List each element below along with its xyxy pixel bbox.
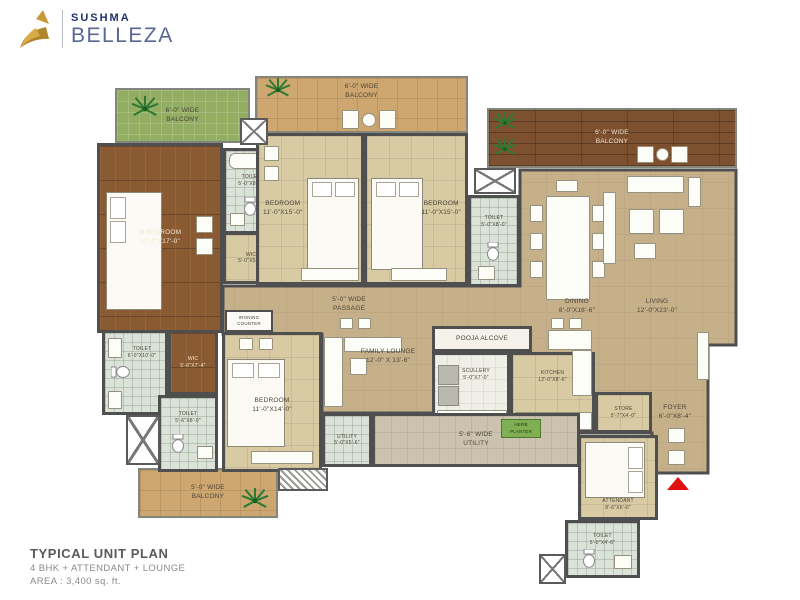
bed [585, 442, 645, 498]
shaft [126, 415, 160, 465]
shaft [539, 554, 566, 584]
room-label: IRONINGCOUNTER [237, 315, 261, 327]
lounge-sofa [324, 337, 343, 407]
bed [307, 178, 359, 270]
dining-chair [530, 205, 543, 222]
room-utility: UTILITY5'-0"X5'-6" [322, 413, 372, 467]
room-toilet-4: TOILET5'-6"X8'-0" [158, 395, 218, 472]
basin-icon [108, 338, 122, 358]
room-master-bedroom: M BEDROOM12'-0"X17'-0" [97, 143, 223, 333]
plan-area: AREA : 3,400 sq. ft. [30, 576, 185, 587]
room-label: 5'-6" WIDEUTILITY [459, 431, 493, 449]
room-bedroom-2: BEDROOM11'-0"X15'-0" [256, 133, 364, 285]
breakfast-counter [548, 330, 592, 350]
chair [264, 166, 279, 181]
plant-icon [492, 138, 518, 160]
dining-label: DINING8'-0"X16'-6" [549, 298, 605, 316]
bar-stool [551, 318, 564, 329]
room-label: 6'-0" WIDEBALCONY [345, 83, 379, 101]
bed [106, 192, 162, 310]
room-label: 6'-0" WIDEBALCONY [166, 107, 200, 125]
floor-plan-page: SUSHMA BELLEZA 6'-0" WIDEBALCONY 6'-0" W… [0, 0, 800, 600]
stool [340, 318, 353, 329]
tv-unit [603, 192, 616, 264]
family-lounge-label: FAMILY LOUNGE12'-0" X 13'-6" [342, 348, 434, 366]
room-label: TOILET5'-0"X8'-0" [481, 215, 506, 228]
basin-icon [197, 446, 213, 459]
wardrobe [301, 268, 359, 281]
room-attendant: ATTENDANT8'-6"X6'-0" [578, 435, 658, 520]
coffee-table [634, 243, 656, 259]
room-label: TOILET5'-6"X8'-0" [175, 411, 200, 424]
toilet-icon [171, 434, 185, 453]
bed [371, 178, 423, 270]
appliance [438, 386, 459, 406]
chair [264, 146, 279, 161]
dining-chair [530, 261, 543, 278]
chair [259, 338, 273, 350]
balcony-table [656, 148, 669, 161]
room-toilet-2: TOILET5'-0"X8'-0" [468, 195, 520, 287]
balcony-chair [379, 110, 396, 129]
room-label: POOJA ALCOVE [456, 335, 508, 344]
room-bedroom-3: BEDROOM11'-0"X15'-0" [364, 133, 468, 285]
toilet-icon [111, 365, 130, 379]
wardrobe [251, 451, 313, 464]
room-label: ATTENDANT8'-6"X6'-0" [602, 498, 633, 511]
room-store: STORE5'-7"X4'-0" [595, 392, 652, 433]
room-label: WIC5'-6"X7'-4" [180, 356, 205, 369]
room-utility-corridor: 5'-6" WIDEUTILITY HERBPLANTER [372, 413, 580, 467]
stool [358, 318, 371, 329]
room-toilet-5: TOILET5'-0"X4'-6" [565, 520, 640, 578]
living-label: LIVING12'-0"X23'-0" [629, 298, 685, 316]
dining-chair [530, 233, 543, 250]
room-label: TOILET5'-0"X4'-6" [590, 533, 615, 546]
room-label: BEDROOM11'-0"X15'-0" [421, 200, 461, 218]
room-label: BEDROOM11'-0"X15'-0" [263, 200, 303, 218]
balcony-chair [637, 146, 654, 163]
shaft [474, 168, 516, 194]
entry-arrow [667, 477, 689, 490]
plan-title: TYPICAL UNIT PLAN [30, 546, 185, 561]
sofa [627, 176, 684, 193]
balcony-chair [671, 146, 688, 163]
plant-icon [264, 78, 292, 102]
room-label: BEDROOM11'-0"X14'-0" [225, 397, 319, 415]
room-label: KITCHEN12'-0"X8'-6" [538, 370, 566, 383]
toilet-icon [582, 549, 596, 568]
shower-tray [108, 391, 122, 409]
plant-icon [240, 488, 270, 514]
dining-chair [556, 180, 578, 192]
toilet-icon [486, 242, 500, 261]
balcony-chair [342, 110, 359, 129]
room-label: M BEDROOM12'-0"X17'-0" [139, 229, 182, 247]
room-bedroom-4: BEDROOM11'-0"X14'-0" [222, 332, 322, 472]
basin-icon [478, 266, 495, 280]
bench [688, 177, 701, 207]
wardrobe [391, 268, 447, 281]
armchair [629, 209, 654, 234]
plant-icon [492, 112, 518, 134]
dining-table [546, 196, 590, 300]
room-balcony-right: 6'-0" WIDEBALCONY [487, 108, 737, 168]
appliance [438, 365, 459, 385]
herb-planter: HERBPLANTER [501, 419, 541, 438]
herb-label: HERBPLANTER [510, 422, 532, 434]
passage-label: 5'-0" WIDEPASSAGE [317, 296, 381, 314]
room-label: STORE5'-7"X4'-0" [611, 406, 636, 419]
title-block: TYPICAL UNIT PLAN 4 BHK + ATTENDANT + LO… [30, 546, 185, 587]
foyer-chair [668, 450, 685, 465]
room-label: 5'-0" WIDEBALCONY [191, 484, 225, 502]
breakfast-counter [572, 350, 592, 396]
room-label: SCULLERY5'-0"X7'-0" [462, 368, 490, 381]
room-label: UTILITY5'-0"X5'-6" [334, 434, 359, 447]
room-label: TOILET6'-0"X10'-0" [128, 346, 156, 359]
vent-grille [278, 468, 328, 491]
armchair [659, 209, 684, 234]
room-pooja-alcove: POOJA ALCOVE [432, 326, 532, 352]
foyer-chair [668, 428, 685, 443]
foyer-label: FOYER6'-0"X8'-4" [647, 404, 703, 422]
toilet-icon [243, 197, 257, 216]
nightstand [196, 238, 213, 255]
plant-icon [130, 96, 160, 122]
nightstand [196, 216, 213, 233]
console [697, 332, 709, 380]
shaft [240, 118, 268, 145]
room-label: 6'-0" WIDEBALCONY [595, 129, 629, 147]
chair [239, 338, 253, 350]
basin-icon [230, 213, 245, 226]
room-wic-2: WIC5'-6"X7'-4" [168, 330, 218, 395]
balcony-table [362, 113, 376, 127]
ironing-counter: IRONINGCOUNTER [225, 310, 273, 332]
basin-icon [614, 555, 632, 569]
plan-subtitle: 4 BHK + ATTENDANT + LOUNGE [30, 563, 185, 574]
bar-stool [569, 318, 582, 329]
